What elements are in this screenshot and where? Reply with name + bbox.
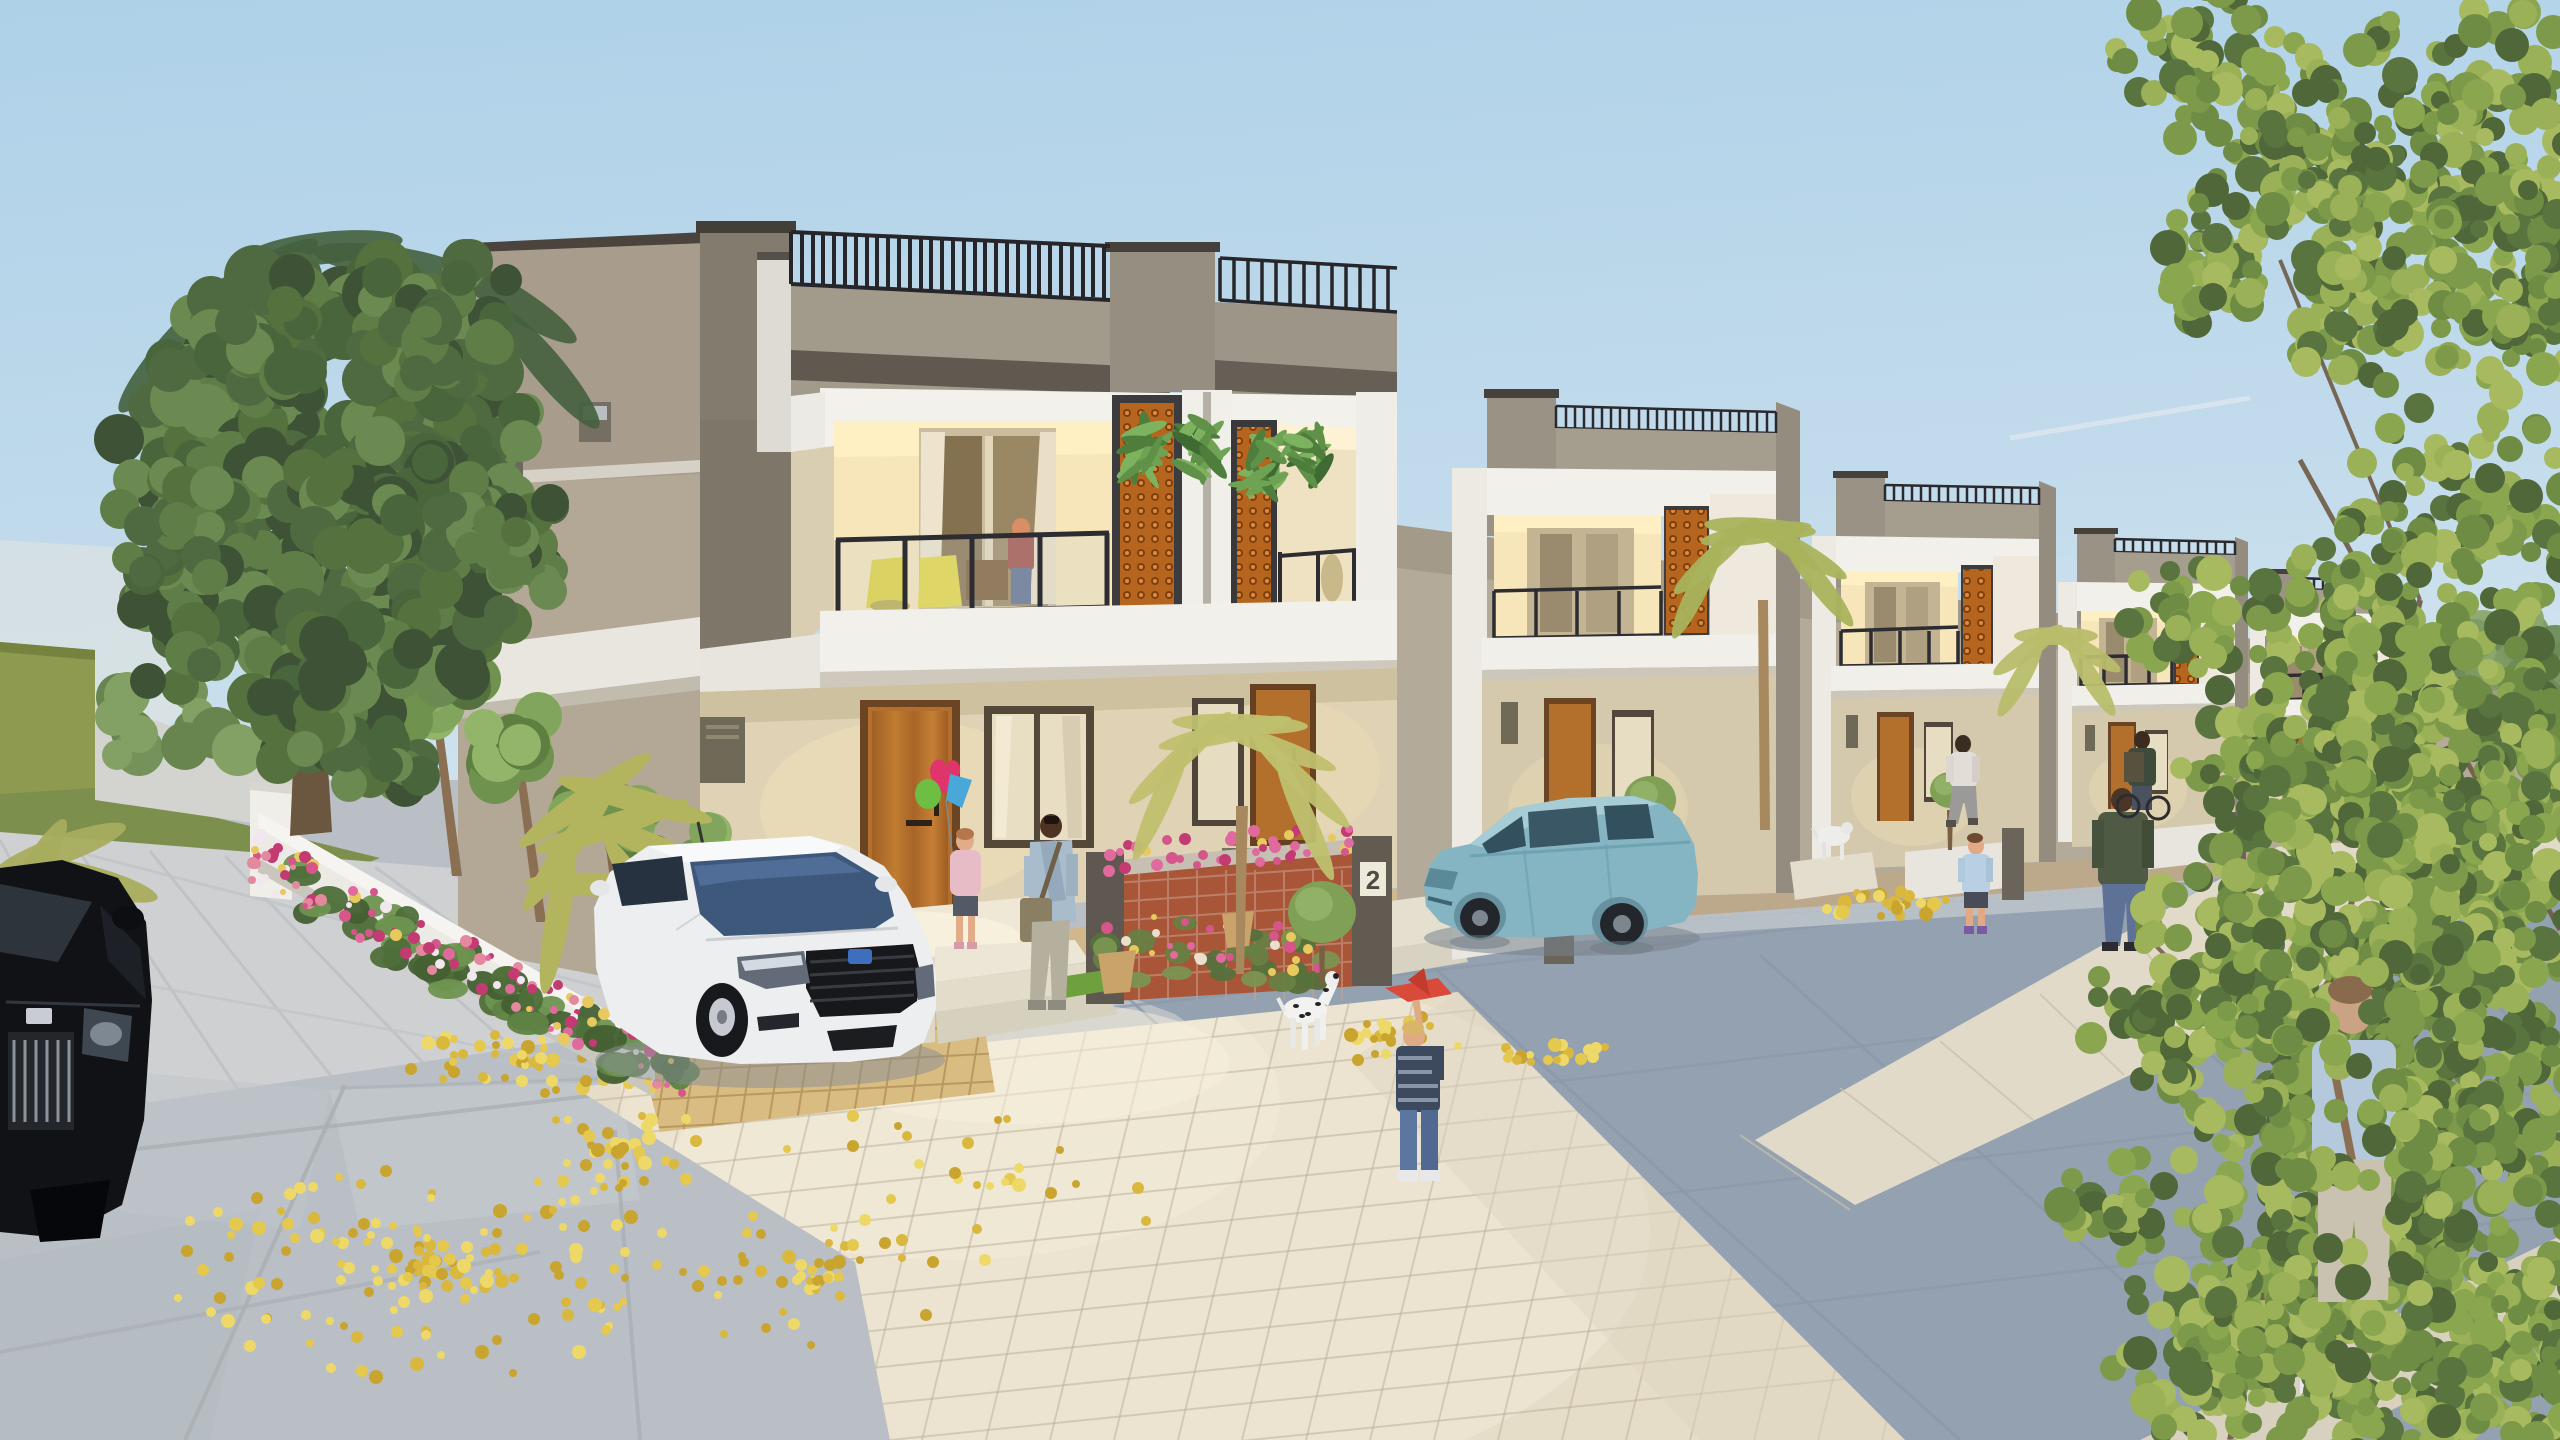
svg-text:2: 2 bbox=[1366, 865, 1380, 895]
